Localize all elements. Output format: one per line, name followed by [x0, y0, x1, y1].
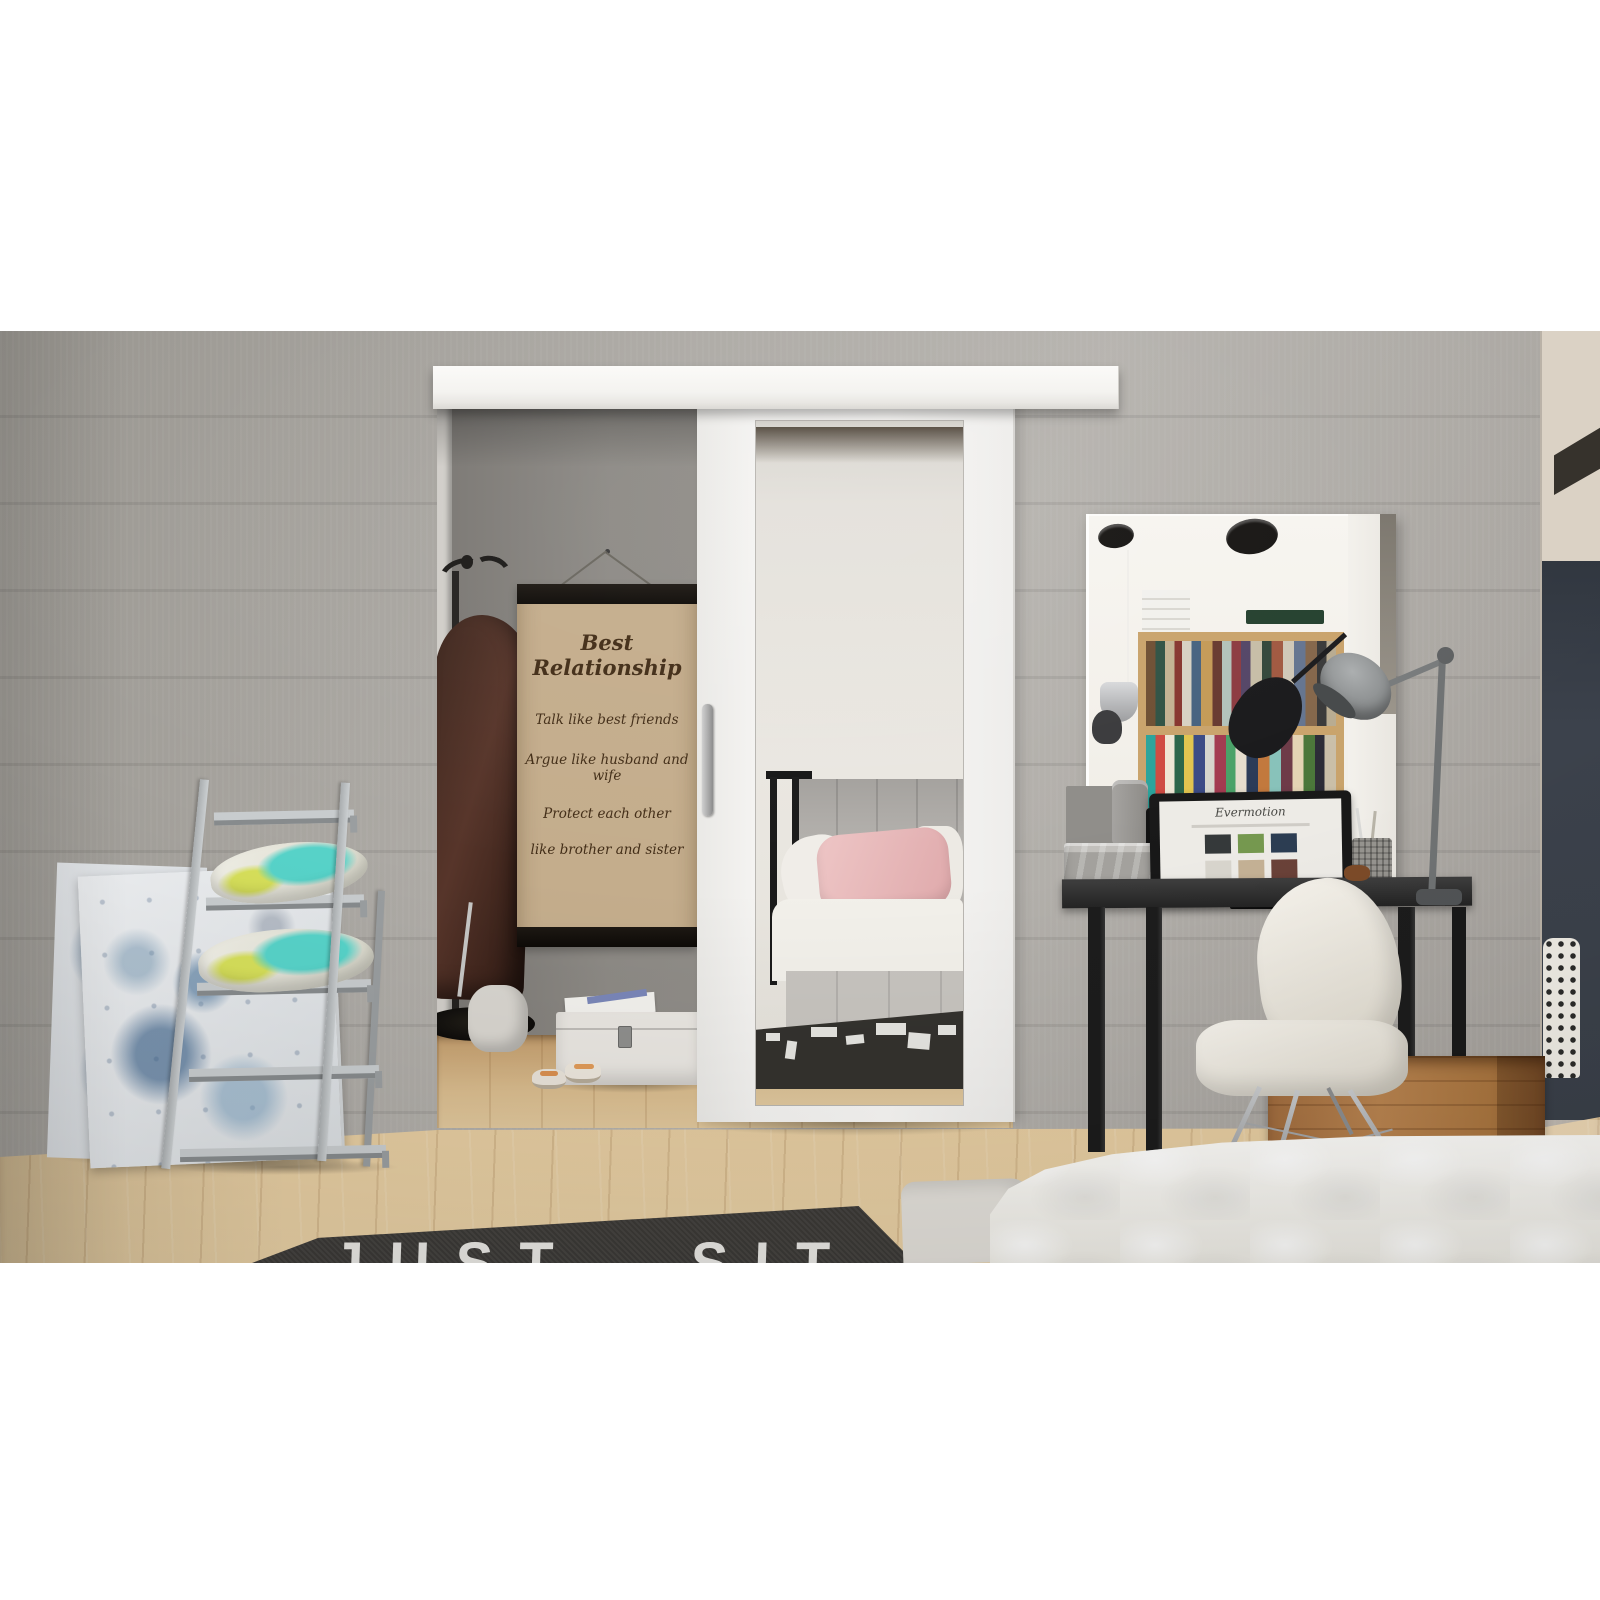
- poster-line: like brother and sister: [517, 842, 697, 858]
- desk-leg: [1088, 907, 1105, 1152]
- poster-title: Best Relationship: [517, 630, 697, 680]
- mirror-ceiling-band: [756, 427, 963, 463]
- spotlight-icon: [1224, 516, 1280, 558]
- rug-glyph: [785, 1040, 797, 1059]
- poster-line: Protect each other: [517, 806, 697, 822]
- desk-leg: [1146, 907, 1162, 1157]
- door-rail-track: [433, 366, 1119, 409]
- books-on-top: [1142, 590, 1190, 632]
- photo-area: Best Relationship Talk like best friends…: [0, 331, 1600, 1263]
- poster-line: Talk like best friends: [517, 712, 697, 728]
- cloth-bag: [468, 985, 528, 1052]
- thumbnail: [1238, 834, 1264, 853]
- lamp-base: [1416, 889, 1462, 905]
- rug-glyph: [811, 1027, 837, 1037]
- polka-dot-roll: [1543, 938, 1580, 1078]
- mirror-mattress: [772, 899, 963, 981]
- thumbnail: [1205, 834, 1231, 853]
- door-mirror: [755, 420, 964, 1106]
- thumbnail: [1271, 833, 1297, 852]
- desk-top: [1062, 877, 1472, 909]
- sandal-strap: [574, 1064, 594, 1069]
- rug-glyph: [876, 1023, 906, 1035]
- laptop-navbar: [1191, 823, 1309, 828]
- sandal-strap: [540, 1071, 558, 1076]
- lamp-joint: [1437, 647, 1454, 664]
- cup-on-desk: [1344, 865, 1370, 881]
- rug-glyph: [938, 1025, 956, 1035]
- chair-seat: [1196, 1020, 1408, 1096]
- chest-latch: [618, 1026, 632, 1048]
- poster-top-bar: [517, 584, 697, 604]
- spotlight-icon: [1097, 522, 1136, 551]
- headphones: [1092, 710, 1122, 744]
- sandal: [532, 1069, 566, 1089]
- sandal: [565, 1061, 601, 1083]
- bookshelf-frame-top: [1138, 632, 1344, 641]
- pendant-cord: [1127, 550, 1129, 690]
- screenshot: Best Relationship Talk like best friends…: [0, 0, 1600, 1600]
- thumbnail: [1238, 860, 1264, 879]
- thumbnail: [1271, 859, 1297, 878]
- flat-green-book: [1246, 610, 1324, 624]
- thumbnail: [1205, 860, 1231, 879]
- rug-glyph: [766, 1033, 780, 1041]
- coat-rack-knob: [461, 555, 473, 569]
- sliding-door: [697, 395, 1015, 1122]
- quote-poster: Best Relationship Talk like best friends…: [517, 584, 697, 947]
- laptop-screen: Evermotion: [1159, 798, 1343, 889]
- rug-glyph: [846, 1034, 865, 1045]
- grey-jar: [1112, 780, 1148, 844]
- coat-rack-hook: [468, 551, 515, 592]
- laptop-logo: Evermotion: [1159, 803, 1341, 820]
- hallway-ceiling-beam: [1554, 423, 1600, 495]
- door-handle: [702, 704, 713, 816]
- rug-text: JUST SIT: [331, 1228, 857, 1263]
- abstract-canvas-front: [78, 866, 345, 1169]
- poster-line: Argue like husband and wife: [517, 752, 697, 784]
- rug-glyph: [907, 1032, 930, 1050]
- thumbnail-row: [1160, 832, 1342, 854]
- poster-bottom-bar: [517, 927, 697, 947]
